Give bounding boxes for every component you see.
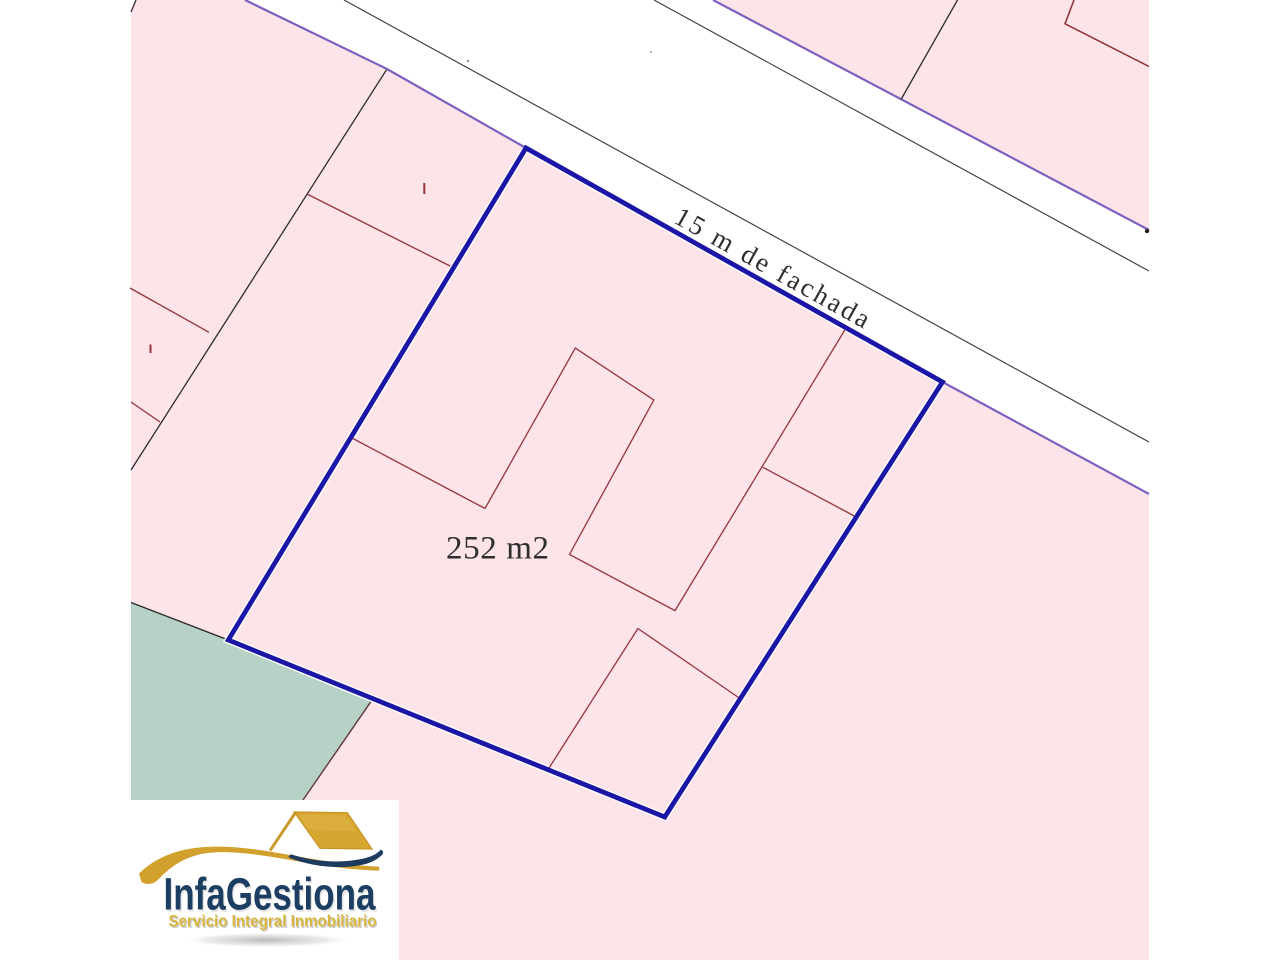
svg-text:252 m2: 252 m2: [446, 531, 549, 567]
svg-text:Servicio Integral Inmobiliario: Servicio Integral Inmobiliario: [169, 913, 377, 931]
